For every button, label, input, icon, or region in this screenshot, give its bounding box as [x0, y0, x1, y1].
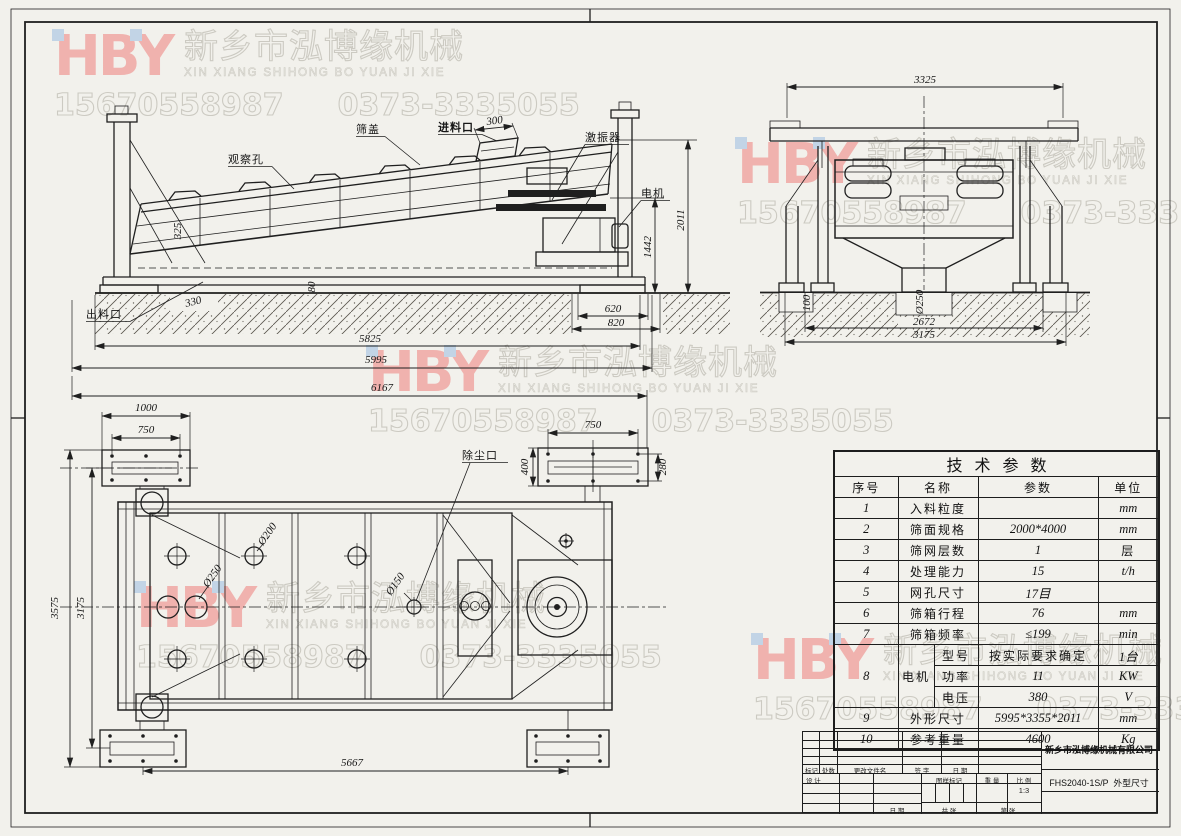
dim-3575: 3575 — [49, 597, 61, 621]
watermark-phone-mobile: 15670558987 — [136, 640, 366, 675]
field-date2: 日 期 — [875, 805, 919, 815]
watermark-phone-mobile: 15670558987 — [54, 88, 284, 123]
plan-view-labels: 除尘口 Ø250 Ø200 Ø150 — [199, 448, 508, 601]
field-mark: 标记 — [804, 765, 819, 775]
watermark-phone-tel: 0373-3335055 — [1021, 196, 1181, 231]
dim-3175-front: 3175 — [912, 329, 936, 341]
col-header-name: 名称 — [898, 477, 978, 498]
dim-820: 820 — [608, 317, 625, 329]
label-feed-inlet: 进料口 — [438, 120, 474, 134]
watermark: HBY 新乡市泓博缘机械 XIN XIANG SHIHONG BO YUAN J… — [54, 30, 484, 123]
scale-value: 1:3 — [1008, 786, 1040, 795]
plan-view-machine — [60, 440, 668, 767]
cell-name: 筛网层数 — [898, 540, 978, 561]
dim-5995: 5995 — [365, 354, 388, 366]
dim-3325: 3325 — [913, 74, 937, 86]
field-design: 设 计 — [806, 775, 821, 785]
drawing-title: 外型尺寸 — [1113, 778, 1148, 788]
spec-table: 技术参数 序号 名称 参数 单位 1 入料粒度 mm 2 筛面规格 2000*4… — [833, 450, 1160, 751]
logo-accent — [130, 29, 142, 41]
cell-value: 17目 — [978, 582, 1098, 603]
feed-inlet-chute — [476, 138, 518, 161]
table-row: 9 外形尺寸 5995*3355*2011 mm — [834, 708, 1159, 729]
dim-6167: 6167 — [371, 382, 394, 394]
field-pattern-mark: 图样标记 — [923, 775, 975, 785]
table-row: 5 网孔尺寸 17目 — [834, 582, 1159, 603]
screen-holes — [157, 543, 424, 672]
field-change-file: 更改文件名 — [839, 765, 901, 775]
cell-no: 6 — [834, 603, 898, 624]
cell-unit: KW — [1098, 666, 1159, 687]
field-sheet-no: 第 张 — [977, 805, 1039, 815]
cell-value — [978, 498, 1098, 519]
exciter-assembly — [496, 168, 628, 266]
dim-620: 620 — [605, 303, 622, 315]
watermark-company-cn: 新乡市泓博缘机械 — [266, 582, 546, 616]
side-view-ground — [95, 293, 730, 334]
logo-accent — [444, 345, 456, 357]
table-row: 4 处理能力 15 t/h — [834, 561, 1159, 582]
dim-330: 330 — [183, 294, 203, 310]
cell-value: 76 — [978, 603, 1098, 624]
cell-name: 外形尺寸 — [898, 708, 978, 729]
table-row: 2 筛面规格 2000*4000 mm — [834, 519, 1159, 540]
label-observation-hole: 观察孔 — [228, 152, 264, 166]
label-hole-200: Ø200 — [255, 520, 280, 548]
field-weight: 重 量 — [977, 775, 1007, 785]
cell-name: 入料粒度 — [898, 498, 978, 519]
hby-logo: HBY — [136, 582, 254, 635]
company-name: 新乡市泓博缘机械有限公司 — [1043, 743, 1155, 756]
col-header-value: 参数 — [978, 477, 1098, 498]
cell-unit: 层 — [1098, 540, 1159, 561]
cell-value: ≤199 — [978, 624, 1098, 645]
cell-unit: mm — [1098, 498, 1159, 519]
dim-5825: 5825 — [359, 333, 382, 345]
label-discharge-outlet: 出料口 — [86, 307, 122, 321]
dim-80: 80 — [306, 281, 318, 293]
cell-unit: t/h — [1098, 561, 1159, 582]
label-motor: 电机 — [641, 186, 665, 200]
cell-no: 5 — [834, 582, 898, 603]
cell-value: 380 — [978, 687, 1098, 708]
dim-2011: 2011 — [675, 209, 687, 230]
cell-no: 4 — [834, 561, 898, 582]
watermark-company-en: XIN XIANG SHIHONG BO YUAN JI XIE — [867, 175, 1147, 187]
cell-name: 筛箱频率 — [898, 624, 978, 645]
field-sheets-total: 共 张 — [923, 805, 975, 815]
dim-300: 300 — [485, 114, 504, 128]
dim-1000: 1000 — [135, 402, 158, 414]
cell-unit — [1098, 582, 1159, 603]
dim-5667: 5667 — [341, 757, 364, 769]
table-row: 7 筛箱频率 ≤199 min — [834, 624, 1159, 645]
cell-unit: mm — [1098, 603, 1159, 624]
cell-sub: 型号 — [934, 645, 978, 666]
dim-750-left: 750 — [138, 424, 155, 436]
cell-value: 5995*3355*2011 — [978, 708, 1098, 729]
watermark-company-en: XIN XIANG SHIHONG BO YUAN JI XIE — [266, 619, 546, 631]
mounting-plates — [100, 448, 648, 767]
dim-100: 100 — [801, 294, 813, 311]
watermark-phone-mobile: 15670558987 — [368, 404, 598, 439]
cell-no: 8 — [834, 645, 898, 708]
cell-name: 筛面规格 — [898, 519, 978, 540]
logo-accent — [52, 29, 64, 41]
label-hole-250: Ø250 — [200, 562, 225, 590]
dim-3175-plan: 3175 — [75, 597, 87, 621]
field-sign: 签 字 — [903, 765, 941, 775]
watermark-phone-tel: 0373-3335055 — [338, 88, 580, 123]
logo-accent — [735, 137, 747, 149]
cell-unit: mm — [1098, 519, 1159, 540]
cell-unit: 1台 — [1098, 645, 1159, 666]
logo-accent — [751, 633, 763, 645]
cell-name: 处理能力 — [898, 561, 978, 582]
col-header-unit: 单位 — [1098, 477, 1159, 498]
cell-value: 15 — [978, 561, 1098, 582]
title-block: 标记 处数 更改文件名 签 字 日 期 设 计 日 期 图样标记 重 量 比 例… — [802, 731, 1158, 813]
cell-unit: min — [1098, 624, 1159, 645]
logo-accent — [212, 581, 224, 593]
logo-accent — [366, 345, 378, 357]
dim-750-right: 750 — [585, 419, 602, 431]
dim-dia-250: Ø250 — [914, 289, 926, 315]
plan-view-dims: 1000 750 750 400 280 3575 3175 — [49, 402, 669, 775]
hby-logo: HBY — [737, 138, 855, 191]
label-screen-cover: 筛盖 — [356, 122, 380, 136]
field-date: 日 期 — [942, 765, 978, 775]
table-row: 1 入料粒度 mm — [834, 498, 1159, 519]
watermark-company-cn: 新乡市泓博缘机械 — [498, 346, 778, 380]
logo-accent — [134, 581, 146, 593]
field-count: 处数 — [820, 765, 837, 775]
table-row: 6 筛箱行程 76 mm — [834, 603, 1159, 624]
cell-unit: V — [1098, 687, 1159, 708]
watermark-phone-tel: 0373-3335055 — [652, 404, 894, 439]
dim-280: 280 — [657, 458, 669, 475]
cell-value: 1 — [978, 540, 1098, 561]
table-header-row: 序号 名称 参数 单位 — [834, 477, 1159, 498]
table-row: 3 筛网层数 1 层 — [834, 540, 1159, 561]
spec-table-title: 技术参数 — [834, 451, 1159, 477]
drawing-code: FHS2040-1S/P — [1049, 778, 1108, 788]
cell-name-motor: 电机 — [898, 645, 934, 708]
cell-sub: 功率 — [934, 666, 978, 687]
watermark-company-cn: 新乡市泓博缘机械 — [184, 30, 464, 64]
watermark-company-cn: 新乡市泓博缘机械 — [867, 138, 1147, 172]
side-view-dims: 300 325 330 80 620 820 1442 2011 5825 — [72, 114, 697, 448]
side-view-machine — [100, 102, 645, 293]
cell-no: 9 — [834, 708, 898, 729]
dim-1442: 1442 — [642, 236, 654, 259]
hby-logo: HBY — [368, 346, 486, 399]
cell-no: 1 — [834, 498, 898, 519]
watermark-company-en: XIN XIANG SHIHONG BO YUAN JI XIE — [184, 67, 464, 79]
label-exciter: 激振器 — [585, 130, 621, 144]
dim-325: 325 — [172, 222, 184, 240]
logo-accent — [813, 137, 825, 149]
label-dust-port: 除尘口 — [462, 448, 498, 462]
drawing-number: FHS2040-1S/P 外型尺寸 — [1043, 776, 1155, 789]
side-view-labels: 观察孔 筛盖 进料口 激振器 电机 出料口 — [86, 120, 670, 322]
watermark: HBY 新乡市泓博缘机械 XIN XIANG SHIHONG BO YUAN J… — [368, 346, 798, 439]
cell-no: 3 — [834, 540, 898, 561]
label-hole-150: Ø150 — [383, 570, 408, 598]
table-row-motor: 8 电机 型号 按实际要求确定 1台 — [834, 645, 1159, 666]
cell-no: 7 — [834, 624, 898, 645]
cell-value: 11 — [978, 666, 1098, 687]
watermark: HBY 新乡市泓博缘机械 XIN XIANG SHIHONG BO YUAN J… — [136, 582, 566, 675]
front-view-dims: 3325 100 Ø250 2672 3175 — [785, 74, 1066, 346]
drawing-sheet: HBY 新乡市泓博缘机械 XIN XIANG SHIHONG BO YUAN J… — [0, 0, 1181, 836]
front-view-machine — [760, 96, 1090, 337]
cell-value: 2000*4000 — [978, 519, 1098, 540]
col-header-no: 序号 — [834, 477, 898, 498]
dim-2672: 2672 — [913, 316, 936, 328]
watermark-phone-mobile: 15670558987 — [737, 196, 967, 231]
field-scale: 比 例 — [1008, 775, 1040, 785]
cell-value: 按实际要求确定 — [978, 645, 1098, 666]
cell-unit: mm — [1098, 708, 1159, 729]
cell-name: 筛箱行程 — [898, 603, 978, 624]
cell-no: 2 — [834, 519, 898, 540]
hby-logo: HBY — [54, 30, 172, 83]
dim-400: 400 — [519, 458, 531, 475]
cell-sub: 电压 — [934, 687, 978, 708]
watermark-phone-tel: 0373-3335055 — [420, 640, 662, 675]
cell-name: 网孔尺寸 — [898, 582, 978, 603]
watermark: HBY 新乡市泓博缘机械 XIN XIANG SHIHONG BO YUAN J… — [737, 138, 1167, 231]
watermark-company-en: XIN XIANG SHIHONG BO YUAN JI XIE — [498, 383, 778, 395]
